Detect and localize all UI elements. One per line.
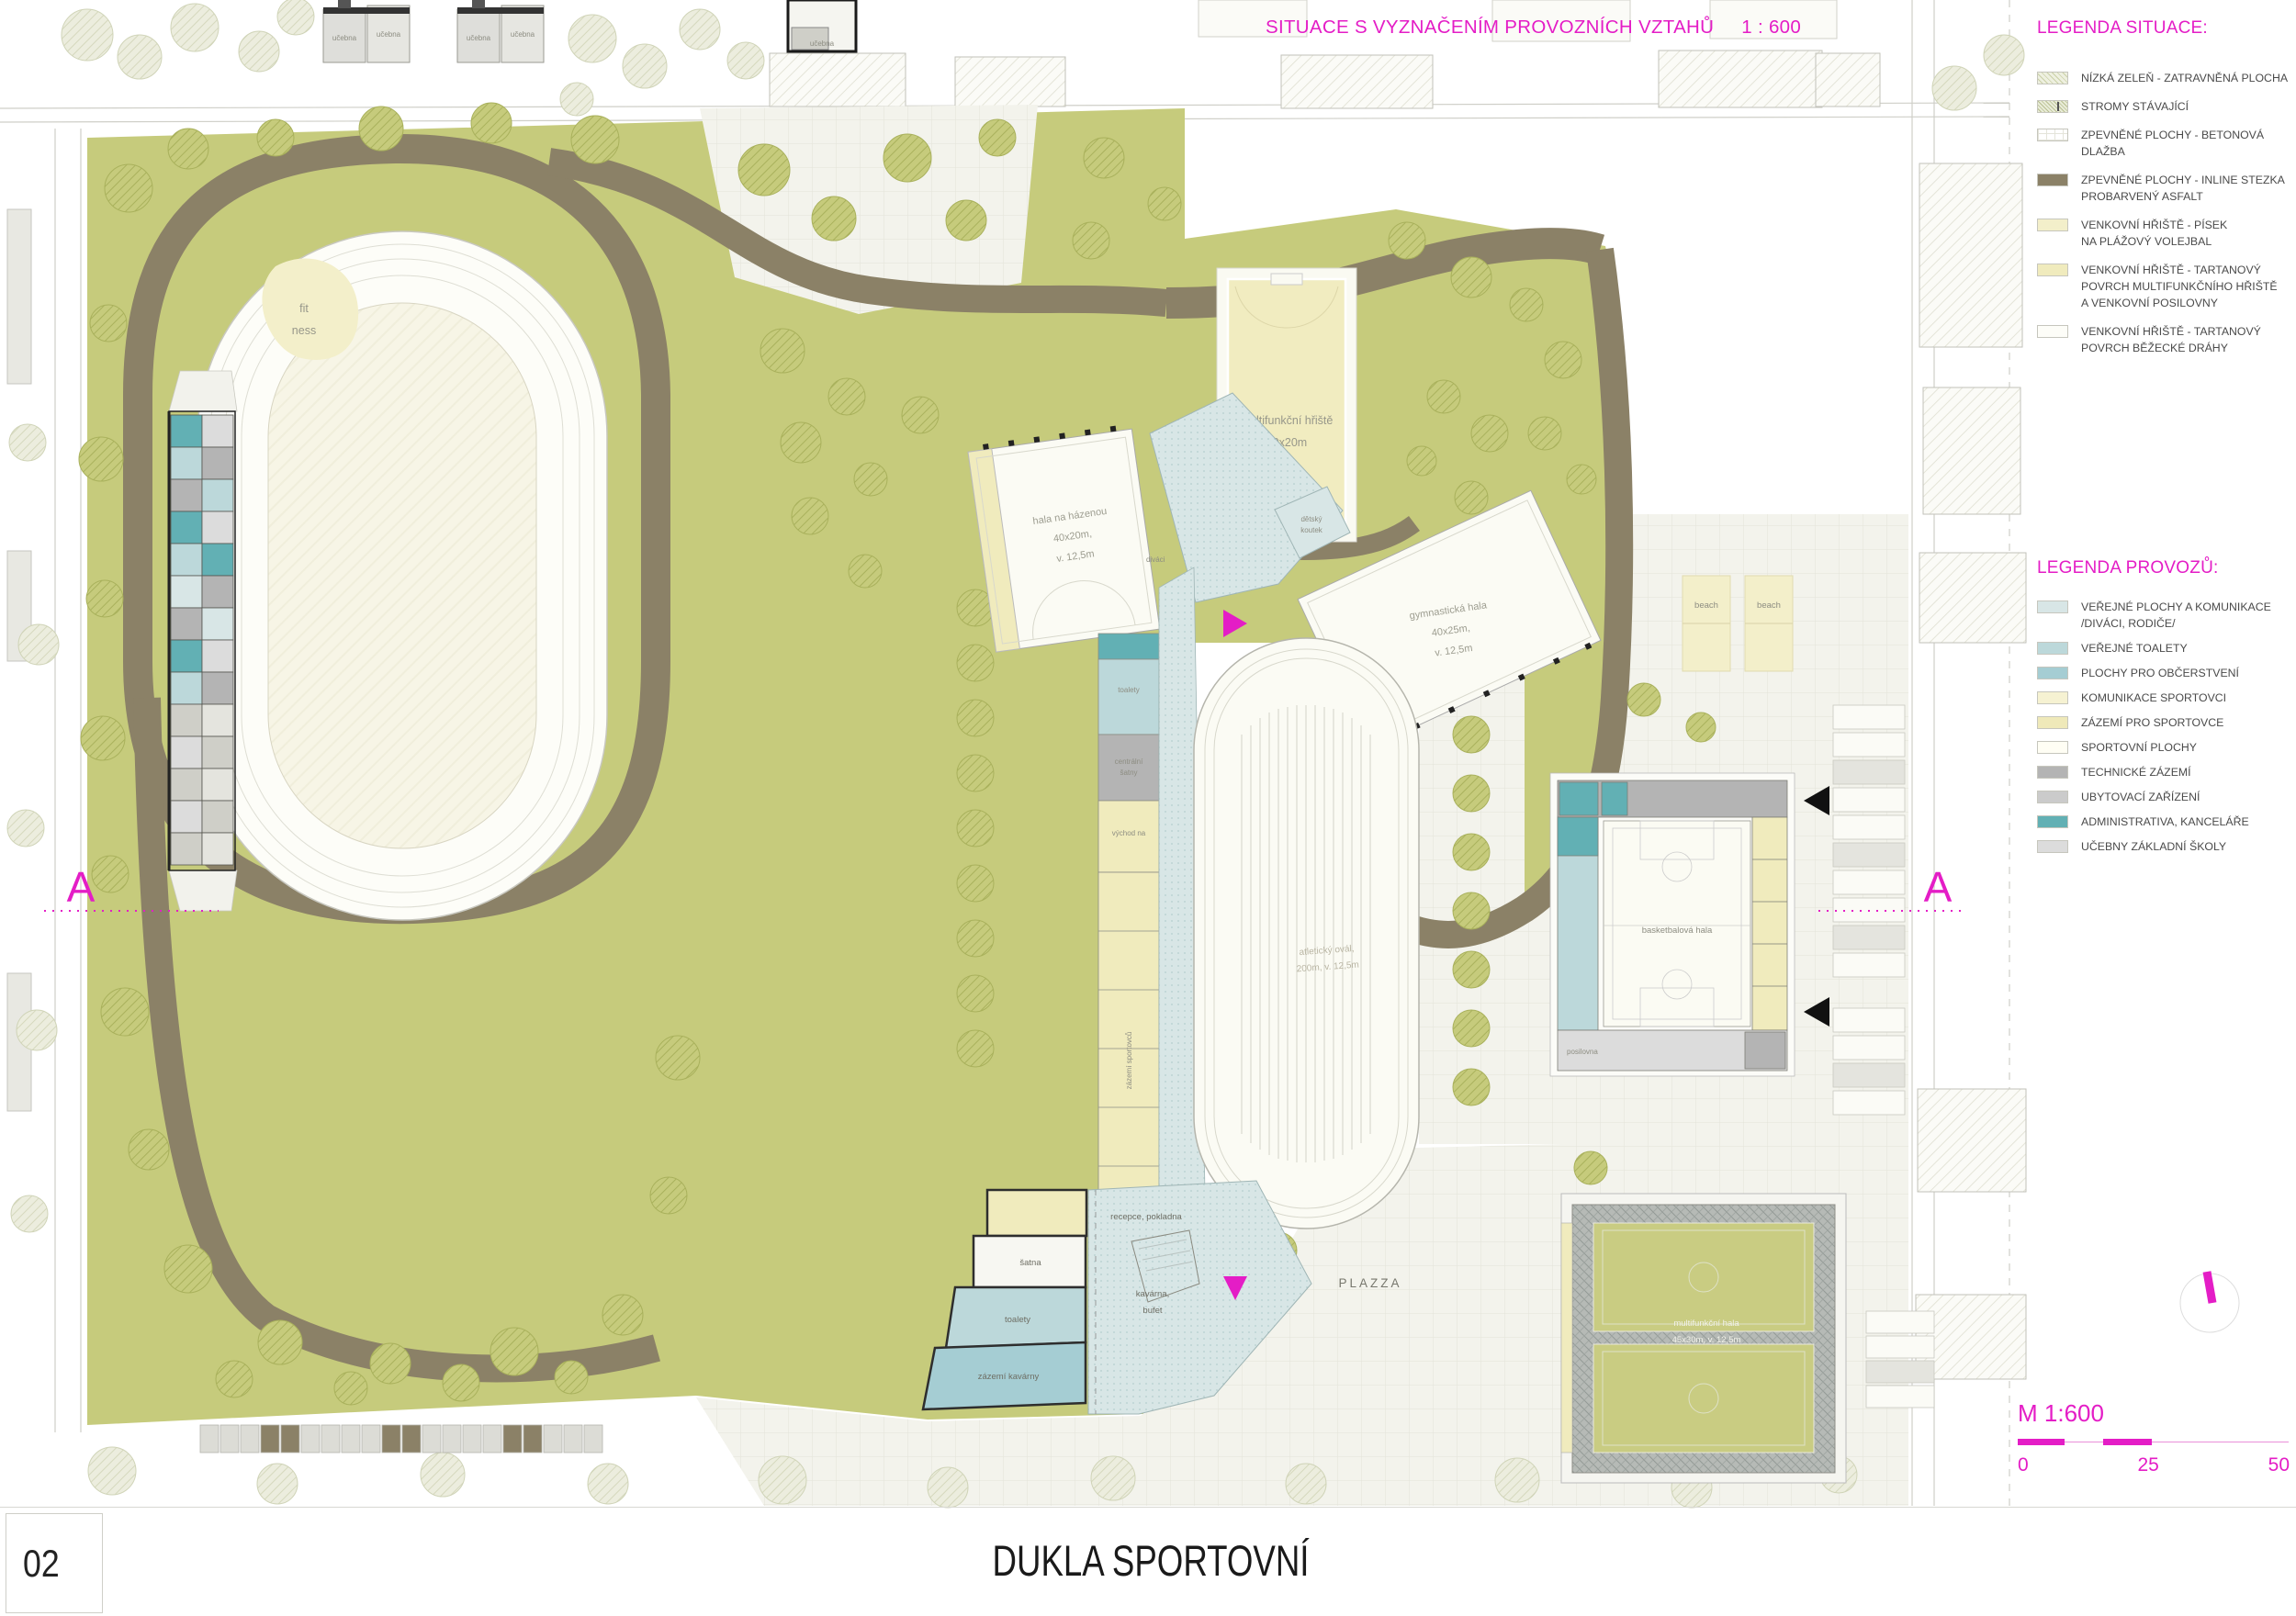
swatch-technical [2037,766,2068,779]
legend-item-label: TECHNICKÉ ZÁZEMÍ [2081,764,2191,780]
scale-label: M 1:600 [2018,1399,2290,1428]
stadium-tribune-building [169,371,237,911]
swatch-classrooms [2037,840,2068,853]
legend-item: ZPEVNĚNÉ PLOCHY - BETONOVÁ DLAŽBA [2037,127,2290,160]
lockers-label: šatna [1019,1258,1041,1268]
handball-hall: hala na házenou 40x20m, v. 12,5m [967,423,1160,652]
plan-scale-ratio: 1 : 600 [1741,17,1801,39]
athletics-stadium [197,231,607,920]
legend-item: SPORTOVNÍ PLOCHY [2037,739,2290,756]
fitness-label-line1: fit [299,302,309,315]
plan-drawing: fit ness multifunkční hřiště 40x20m beac… [0,0,2296,1616]
swatch-refreshments [2037,667,2068,679]
scale-bar-block: M 1:600 0 25 50 [2018,1399,2290,1476]
swatch-grass [2037,72,2068,84]
legend-item: VENKOVNÍ HŘIŠTĚ - TARTANOVÝ POVRCH BĚŽEC… [2037,323,2290,356]
classroom-label-5: učebna [810,39,835,48]
basketball-hall-label: basketbalová hala [1642,926,1713,936]
plan-title: SITUACE S VYZNAČENÍM PROVOZNÍCH VZTAHŮ [1266,17,1714,39]
services-strip [1098,634,1159,1226]
swatch-track [2037,325,2068,338]
swatch-sports-areas [2037,741,2068,754]
swatch-tartan [2037,264,2068,276]
cafe-back-label: zázemí kavárny [978,1372,1040,1382]
scale-bar-segment [2018,1439,2065,1445]
swatch-accommodation [2037,791,2068,803]
legend-situace-title: LEGENDA SITUACE: [2037,18,2290,39]
legend-item-label: STROMY STÁVAJÍCÍ [2081,98,2189,115]
legend-item-label: ADMINISTRATIVA, KANCELÁŘE [2081,814,2249,830]
kids-corner-label-line1: dětský [1300,515,1322,523]
legend-provozu: LEGENDA PROVOZŮ: VEŘEJNÉ PLOCHY A KOMUNI… [2037,558,2290,863]
swatch-trees [2037,100,2068,113]
fitness-label-line2: ness [292,324,316,337]
sheet-number-box: 02 [6,1513,103,1613]
legend-item-label: ZÁZEMÍ PRO SPORTOVCE [2081,714,2223,731]
parking-south [200,1425,602,1453]
north-indicator [2180,1272,2239,1332]
legend-item: UČEBNY ZÁKLADNÍ ŠKOLY [2037,838,2290,855]
legend-item-label: VENKOVNÍ HŘIŠTĚ - PÍSEK NA PLÁŽOVÝ VOLEJ… [2081,217,2227,250]
scale-tick-0: 0 [2018,1454,2029,1476]
legend-provozu-title: LEGENDA PROVOZŮ: [2037,558,2290,578]
section-marker-left: A [67,863,96,911]
legend-item: PLOCHY PRO OBČERSTVENÍ [2037,665,2290,681]
legend-item-label: SPORTOVNÍ PLOCHY [2081,739,2197,756]
beach-court-label-right: beach [1757,600,1781,611]
legend-item-label: VENKOVNÍ HŘIŠTĚ - TARTANOVÝ POVRCH MULTI… [2081,262,2278,311]
legend-item: NÍZKÁ ZELEŇ - ZATRAVNĚNÁ PLOCHA [2037,70,2290,86]
scale-bar-segment [2065,1442,2103,1442]
swatch-paving [2037,129,2068,141]
legend-item-label: KOMUNIKACE SPORTOVCI [2081,690,2226,706]
classroom-label-4: učebna [511,30,535,39]
legend-item: KOMUNIKACE SPORTOVCI [2037,690,2290,706]
exit-label: východ na [1112,829,1146,837]
central-lockers-label-line1: centrální [1115,757,1143,766]
swatch-athlete-facilities [2037,716,2068,729]
gym-room-label: posilovna [1567,1048,1598,1056]
scale-bar-segment [2152,1442,2289,1442]
classroom-label-2: učebna [377,30,401,39]
legend-item: VEŘEJNÉ PLOCHY A KOMUNIKACE /DIVÁCI, ROD… [2037,599,2290,632]
legend-item: STROMY STÁVAJÍCÍ [2037,98,2290,115]
legend-item-label: PLOCHY PRO OBČERSTVENÍ [2081,665,2239,681]
scale-tick-50: 50 [2268,1454,2290,1476]
plan-title-row: SITUACE S VYZNAČENÍM PROVOZNÍCH VZTAHŮ 1… [1266,17,1801,39]
basketball-hall: basketbalová hala posilovna [1550,773,1795,1076]
section-marker-right: A [1924,863,1953,911]
legend-item: VEŘEJNÉ TOALETY [2037,640,2290,656]
toilets-label: toalety [1005,1315,1030,1325]
site-plan-sheet: fit ness multifunkční hřiště 40x20m beac… [0,0,2296,1616]
classroom-label-1: učebna [332,34,357,42]
legend-item: TECHNICKÉ ZÁZEMÍ [2037,764,2290,780]
reception-label: recepce, pokladna [1110,1212,1182,1222]
titleblock-divider [0,1507,2296,1508]
scale-bar [2018,1439,2290,1445]
indoor-athletics-hall: atletický ovál, 200m, v. 12,5m [1194,638,1419,1229]
legend-item: ZÁZEMÍ PRO SPORTOVCE [2037,714,2290,731]
legend-item: ADMINISTRATIVA, KANCELÁŘE [2037,814,2290,830]
swatch-athlete-routes [2037,691,2068,704]
kids-corner-label-line2: koutek [1300,526,1323,534]
legend-item-label: ZPEVNĚNÉ PLOCHY - BETONOVÁ DLAŽBA [2081,127,2264,160]
legend-situace: LEGENDA SITUACE: NÍZKÁ ZELEŇ - ZATRAVNĚN… [2037,18,2290,368]
legend-item: VENKOVNÍ HŘIŠTĚ - PÍSEK NA PLÁŽOVÝ VOLEJ… [2037,217,2290,250]
swatch-sand [2037,219,2068,231]
central-lockers-label-line2: šatny [1120,769,1137,777]
legend-item: UBYTOVACÍ ZAŘÍZENÍ [2037,789,2290,805]
classroom-label-3: učebna [467,34,491,42]
legend-item-label: NÍZKÁ ZELEŇ - ZATRAVNĚNÁ PLOCHA [2081,70,2288,86]
scale-bar-segment [2103,1439,2152,1445]
legend-item-label: UČEBNY ZÁKLADNÍ ŠKOLY [2081,838,2226,855]
swatch-toilets [2037,642,2068,655]
multihall-label-line1: multifunkční hala [1673,1319,1739,1329]
legend-item-label: VEŘEJNÉ PLOCHY A KOMUNIKACE /DIVÁCI, ROD… [2081,599,2271,632]
legend-item-label: ZPEVNĚNÉ PLOCHY - INLINE STEZKA PROBARVE… [2081,172,2285,205]
cafe-label-line1: kavárna, [1136,1289,1169,1299]
plazza-label: PLAZZA [1338,1276,1401,1290]
project-title: DUKLA SPORTOVNÍ [988,1535,1313,1586]
swatch-asphalt [2037,174,2068,186]
multihall-label-line2: 45x30m, v. 12,5m [1672,1335,1741,1345]
legend-item-label: VENKOVNÍ HŘIŠTĚ - TARTANOVÝ POVRCH BĚŽEC… [2081,323,2261,356]
scale-tick-25: 25 [2137,1454,2158,1476]
athlete-services-label: zázemí sportovců [1125,1032,1133,1090]
legend-item: VENKOVNÍ HŘIŠTĚ - TARTANOVÝ POVRCH MULTI… [2037,262,2290,311]
athlete-services-text: zázemí sportovců [1125,1032,1133,1090]
spectators-label: diváci [1146,555,1165,564]
cafe-label-line2: bufet [1142,1306,1162,1316]
legend-item-label: UBYTOVACÍ ZAŘÍZENÍ [2081,789,2200,805]
swatch-public [2037,600,2068,613]
swatch-administration [2037,815,2068,828]
scale-ticks: 0 25 50 [2018,1454,2290,1476]
beach-court-label-left: beach [1694,600,1718,611]
legend-item-label: VEŘEJNÉ TOALETY [2081,640,2188,656]
multifunctional-hall: multifunkční hala 45x30m, v. 12,5m [1561,1194,1846,1483]
legend-item: ZPEVNĚNÉ PLOCHY - INLINE STEZKA PROBARVE… [2037,172,2290,205]
strip-toilets-label: toalety [1118,686,1140,694]
sheet-number: 02 [23,1542,60,1586]
